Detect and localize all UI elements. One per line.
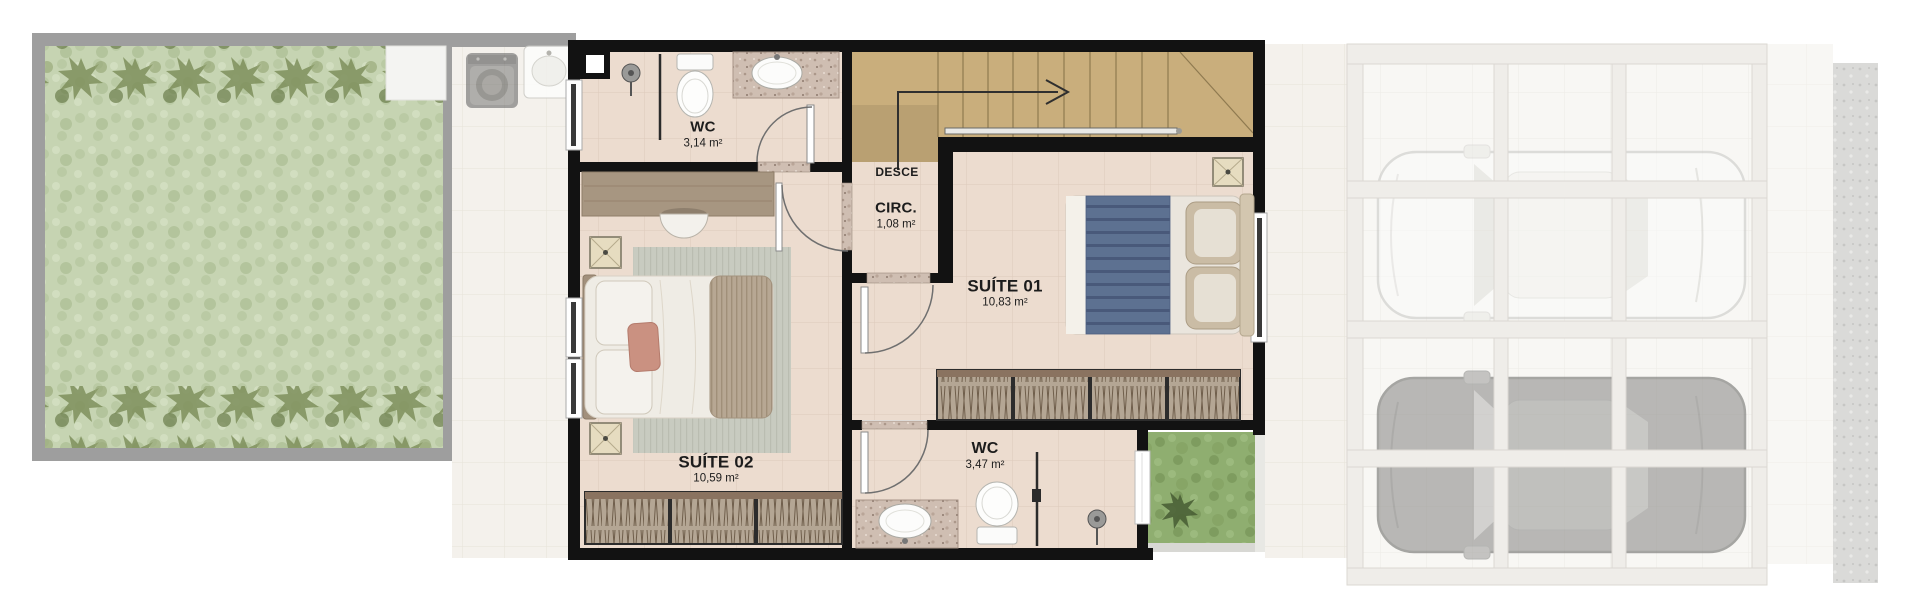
room-circulation-floor <box>852 162 938 283</box>
vanity-counter <box>733 52 839 98</box>
stone-border-strip <box>1833 63 1878 583</box>
ceiling-spot-3 <box>1213 158 1243 186</box>
ghost-backyard-zone <box>32 33 576 558</box>
folded-blanket <box>710 276 772 418</box>
side-path-floor <box>1265 44 1347 558</box>
toilet-icon <box>976 482 1018 544</box>
accent-pillow <box>627 322 660 372</box>
white-car-icon <box>1378 145 1745 325</box>
suite02-bed <box>583 275 773 419</box>
garden-void-edge-right <box>1255 435 1265 552</box>
upper-floor-plan <box>566 40 1267 560</box>
suite02-window-2 <box>566 359 582 418</box>
floor-plan-canvas <box>0 0 1920 606</box>
vanity-counter <box>856 500 958 548</box>
ghost-garage-zone <box>1265 44 1878 585</box>
toilet-icon <box>677 54 713 117</box>
garden-slab-patch <box>386 46 446 100</box>
garden-void <box>1148 432 1255 543</box>
floor-plan-page: WC 3,14 m² DESCE CIRC. 1,08 m² SUÍTE 01 … <box>0 0 1920 606</box>
suite01-bed <box>1066 194 1254 336</box>
suite02-window-1 <box>566 298 582 357</box>
shaft-box <box>583 52 607 76</box>
ceiling-spot-2 <box>590 423 621 454</box>
laundry-floor <box>452 47 576 558</box>
stair-handrail <box>945 128 1177 134</box>
suite02-wardrobe <box>585 492 842 544</box>
suite01-wardrobe <box>937 370 1240 420</box>
washing-machine-icon <box>466 53 518 108</box>
wc-top-window <box>566 80 582 150</box>
headboard <box>1240 194 1254 336</box>
ceiling-spot-1 <box>590 237 621 268</box>
garden-void-edge-bottom <box>1148 543 1255 552</box>
wc-bottom-window <box>1135 451 1150 524</box>
garden-hedge-bottom <box>45 386 443 448</box>
laundry-top-wall <box>456 33 576 47</box>
garden-hedge-top <box>45 46 443 108</box>
blue-blanket <box>1086 196 1170 334</box>
garage-right-strip <box>1767 44 1833 564</box>
